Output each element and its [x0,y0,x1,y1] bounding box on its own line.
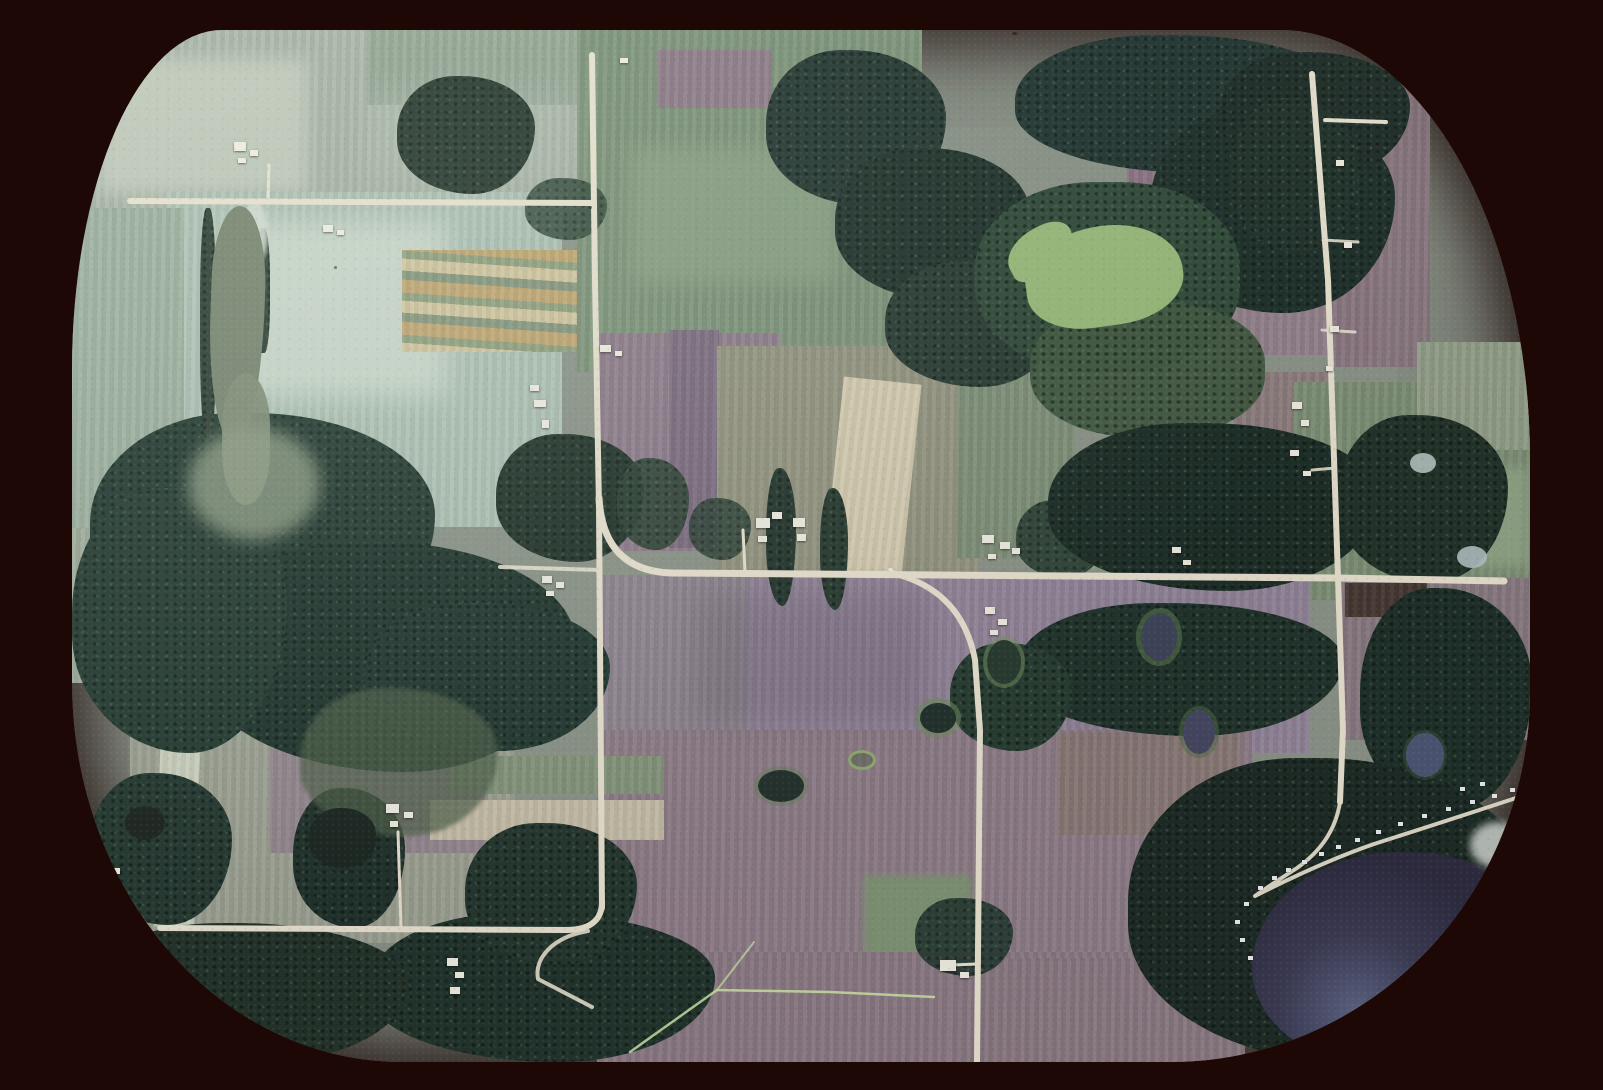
photo-area [72,30,1530,1062]
dust-speck [1238,468,1242,471]
dust-speck [428,654,432,657]
dust-layer [72,30,1530,1062]
dust-speck [890,188,893,191]
film-slide-frame [0,0,1603,1090]
dust-speck [588,206,592,209]
dust-speck [334,266,337,269]
dust-speck [1012,32,1018,35]
vehicle-on-road [888,568,893,571]
